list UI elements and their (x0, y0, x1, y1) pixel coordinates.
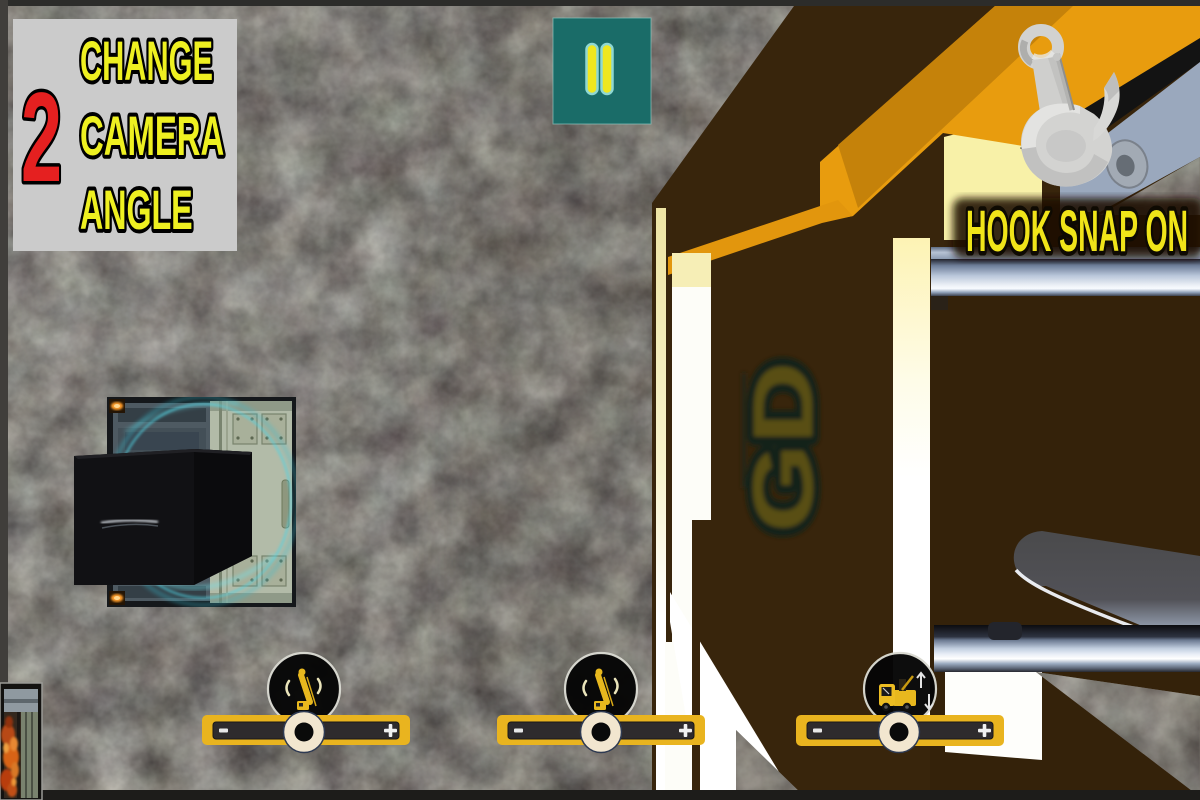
svg-text:ANGLE: ANGLE (80, 179, 193, 242)
svg-text:GD: GD (737, 362, 830, 532)
svg-text:HOOK SNAP ON: HOOK SNAP ON (966, 199, 1188, 264)
svg-text:CHANGE: CHANGE (80, 29, 213, 92)
svg-text:CAMERA: CAMERA (80, 104, 224, 167)
svg-text:2: 2 (21, 66, 62, 208)
